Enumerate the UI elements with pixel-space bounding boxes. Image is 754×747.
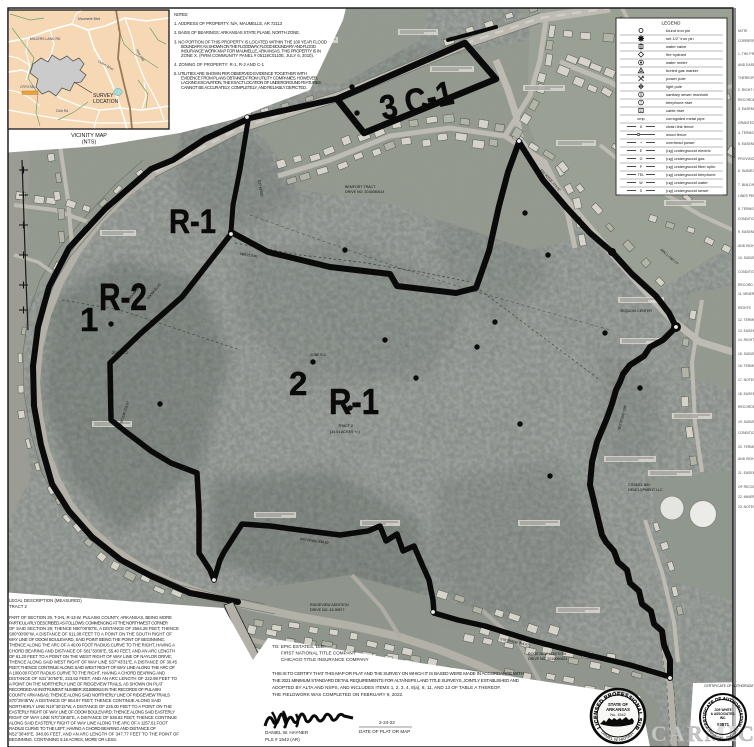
svg-text:21. EASEMENT: 21. EASEMENT xyxy=(738,471,754,475)
svg-text:RECORDED AS INSTRUMENT NUMBER: RECORDED AS INSTRUMENT NUMBER 2016080624… xyxy=(9,687,161,692)
svg-text:fire hydrant: fire hydrant xyxy=(666,52,687,57)
svg-text:(34.04 ACRES +/-): (34.04 ACRES +/-) xyxy=(330,430,360,434)
svg-text:TO: EPIC ESTATES, LLC: TO: EPIC ESTATES, LLC xyxy=(272,644,325,649)
svg-text:buried gas marker: buried gas marker xyxy=(666,68,699,73)
svg-text:A POINT ON THE NORTHERLY LINE: A POINT ON THE NORTHERLY LINE OF RIDGEVI… xyxy=(9,682,163,687)
svg-text:SEQUOIA CENTER: SEQUOIA CENTER xyxy=(620,309,652,313)
svg-text:4. TERMS AND: 4. TERMS AND xyxy=(738,131,754,135)
svg-text:N52°36′48″E, 348.66 FEET, AND: N52°36′48″E, 348.66 FEET, AND AN ARC LEN… xyxy=(9,732,179,737)
svg-text:sanitary sewer manhole: sanitary sewer manhole xyxy=(666,92,709,97)
svg-text:RECORDED: RECORDED xyxy=(738,98,754,102)
svg-text:Club Rd: Club Rd xyxy=(56,109,68,113)
svg-text:LEGAL DESCRIPTION (MEASURED): LEGAL DESCRIPTION (MEASURED) xyxy=(9,598,82,603)
svg-text:+: + xyxy=(640,141,642,145)
svg-text:INC.: INC. xyxy=(720,716,726,720)
svg-text:ROGEVIEW ADDITION: ROGEVIEW ADDITION xyxy=(528,652,566,656)
svg-text:FIRST NATIONAL TITLE COMPANY: FIRST NATIONAL TITLE COMPANY xyxy=(281,651,356,656)
svg-text:chain link fence: chain link fence xyxy=(666,124,694,129)
svg-text:DANIEL W. HAYNER: DANIEL W. HAYNER xyxy=(265,730,309,735)
svg-text:ZONE X. (FIRM COMMUNITY PANEL: ZONE X. (FIRM COMMUNITY PANEL # 05119C01… xyxy=(181,53,314,58)
svg-text:(ug) underground electric: (ug) underground electric xyxy=(666,148,711,153)
svg-text:(ug) underground fiber optic: (ug) underground fiber optic xyxy=(666,164,715,169)
svg-text:MILLERS LAND RD: MILLERS LAND RD xyxy=(30,37,61,41)
svg-text:PART OF SECTION 29, T-3-N, R-1: PART OF SECTION 29, T-3-N, R-13-W, PULAS… xyxy=(9,615,172,620)
svg-text:2-24-22: 2-24-22 xyxy=(379,720,395,725)
svg-text:20. TERMS: 20. TERMS xyxy=(738,445,754,449)
svg-text:COUNTY, ARKANSAS; THENCE ALONG: COUNTY, ARKANSAS; THENCE ALONG SAID NORT… xyxy=(9,693,170,698)
svg-text:AND RIGHT: AND RIGHT xyxy=(738,244,754,248)
svg-text:18. EASEMENT: 18. EASEMENT xyxy=(738,392,754,396)
svg-text:ADOPTED BY ALTA AND NSPS, AND: ADOPTED BY ALTA AND NSPS, AND INCLUDES I… xyxy=(272,685,501,690)
svg-text:WAY LINE OF ODOM BOULEVARD, SA: WAY LINE OF ODOM BOULEVARD, SAID POINT B… xyxy=(9,637,165,642)
svg-text:DRIVE NO. 43-99877: DRIVE NO. 43-99877 xyxy=(310,608,345,612)
svg-text:No. 1542: No. 1542 xyxy=(610,713,625,717)
svg-text:RADIUS CURVE TO THE LEFT, HAVI: RADIUS CURVE TO THE LEFT, HAVING A CHORD… xyxy=(9,726,156,731)
svg-text:THENCE ALONG THE ARC OF A 40.0: THENCE ALONG THE ARC OF A 40.00 FOOT RAD… xyxy=(9,643,175,648)
svg-text:Maumelle Blvd: Maumelle Blvd xyxy=(78,17,100,21)
svg-text:found iron pin: found iron pin xyxy=(666,28,690,33)
svg-text:power pole: power pole xyxy=(666,76,686,81)
svg-text:1. ADDRESS OF PROPERTY: N/A,: 1. ADDRESS OF PROPERTY: N/A, MAUMELLE, A… xyxy=(174,21,283,26)
svg-text:23. NOTES: 23. NOTES xyxy=(738,505,754,509)
svg-text:THE 2021 MINIMUM STANDARD DETA: THE 2021 MINIMUM STANDARD DETAIL REQUIRE… xyxy=(272,678,520,683)
svg-text:THIS IS TO CERTIFY THAT THIS M: THIS IS TO CERTIFY THAT THIS MAP OR PLAT… xyxy=(272,671,524,676)
svg-text:16. TERMS: 16. TERMS xyxy=(738,364,754,368)
svg-text:THEREOF.: THEREOF. xyxy=(738,76,754,80)
svg-text:water valve: water valve xyxy=(666,44,687,49)
svg-text:PARTICULARLY DESCRIBED AS FOLL: PARTICULARLY DESCRIBED AS FOLLOWS: COMME… xyxy=(9,621,168,626)
svg-text:BEMFORT TRACT: BEMFORT TRACT xyxy=(345,185,376,189)
svg-text:2. BASIS OF BEARINGS: ARKANSA: 2. BASIS OF BEARINGS: ARKANSAS STATE PLA… xyxy=(174,30,300,35)
svg-text:CITADEL BAY: CITADEL BAY xyxy=(628,483,651,487)
svg-text:RECORD: RECORD xyxy=(738,283,753,287)
svg-text:EASTERLY RIGHT OF WAY LINE OF: EASTERLY RIGHT OF WAY LINE OF ODOM BOULE… xyxy=(9,709,175,714)
svg-text:telephone riser: telephone riser xyxy=(666,100,693,105)
svg-text:PROVISIONS: PROVISIONS xyxy=(738,157,754,161)
svg-text:ARKANSAS: ARKANSAS xyxy=(606,707,630,712)
svg-text:8. TERMS AND: 8. TERMS AND xyxy=(738,207,754,211)
svg-text:CONDITIONS: CONDITIONS xyxy=(738,217,754,221)
svg-text:NOTE: NOTE xyxy=(738,29,748,33)
svg-text:5. EASEMENT: 5. EASEMENT xyxy=(738,142,754,146)
svg-text:CONDITIONS: CONDITIONS xyxy=(738,431,754,435)
svg-text:DRIVE NO. 2016080624: DRIVE NO. 2016080624 xyxy=(528,657,567,661)
svg-text:CANNOT BE ACCURATELY, COMPLETE: CANNOT BE ACCURATELY, COMPLETELY, AND RE… xyxy=(181,85,307,90)
svg-text:TRACT 2: TRACT 2 xyxy=(9,604,27,609)
svg-text:OF SAID SECTION 29; THENCE N90: OF SAID SECTION 29; THENCE N90°00′00″E, … xyxy=(9,626,179,631)
svg-text:(ug) underground sewer: (ug) underground sewer xyxy=(666,188,709,193)
svg-text:CONDITIONS: CONDITIONS xyxy=(738,270,754,274)
svg-text:13. EASEMENT: 13. EASEMENT xyxy=(738,329,754,333)
svg-text:AND EASEMENTS: AND EASEMENTS xyxy=(738,63,754,67)
svg-text:2: 2 xyxy=(289,365,307,402)
svg-text:#3871: #3871 xyxy=(717,722,730,727)
svg-text:cable riser: cable riser xyxy=(666,108,685,113)
svg-text:wood fence: wood fence xyxy=(666,132,687,137)
svg-text:G: G xyxy=(640,157,643,161)
svg-text:AND RIGHTS: AND RIGHTS xyxy=(738,457,754,461)
svg-text:CHORD BEARING AND DISTANCE OF: CHORD BEARING AND DISTANCE OF S81°33′06″… xyxy=(9,648,175,653)
svg-text:A 1000.00 FOOT RADIUS CURVE TO: A 1000.00 FOOT RADIUS CURVE TO THE RIGHT… xyxy=(9,671,165,676)
svg-text:15. SUBJECT: 15. SUBJECT xyxy=(738,352,754,356)
svg-text:CERTIFICATE OF AUTHORIZATION: CERTIFICATE OF AUTHORIZATION xyxy=(704,684,754,688)
svg-text:light pole: light pole xyxy=(666,84,683,89)
svg-text:ZONE R-1: ZONE R-1 xyxy=(310,353,326,357)
svg-text:12. TERMS: 12. TERMS xyxy=(738,318,754,322)
svg-text:TEL: TEL xyxy=(638,173,645,177)
svg-text:14. RIGHTS: 14. RIGHTS xyxy=(738,338,754,342)
svg-text:22. MINERAL: 22. MINERAL xyxy=(738,495,754,499)
svg-text:CORRESPONDING: CORRESPONDING xyxy=(738,39,754,43)
svg-text:RIGHT OF WAY LINE N70°29′45″E,: RIGHT OF WAY LINE N70°29′45″E, A DISTANC… xyxy=(9,715,177,720)
svg-text:FEET; THENCE CONTINUE ALONG SA: FEET; THENCE CONTINUE ALONG SAID WEST RI… xyxy=(9,665,175,670)
svg-text:S70°29′45″W, A DISTANCE OF 864: S70°29′45″W, A DISTANCE OF 864.97 FEET; … xyxy=(9,698,161,703)
svg-text:3. EASEMENT: 3. EASEMENT xyxy=(738,107,754,111)
svg-text:4. ZONING OF PROPERTY: R-1, R: 4. ZONING OF PROPERTY: R-1, R-2 AND C-1 xyxy=(174,62,265,67)
svg-text:ALONG SAID EASTERLY RIGHT OF W: ALONG SAID EASTERLY RIGHT OF WAY LINE AL… xyxy=(9,720,168,725)
svg-text:7. BUILDING: 7. BUILDING xyxy=(738,183,754,187)
svg-text:GRANTED: GRANTED xyxy=(738,121,754,125)
svg-text:water meter: water meter xyxy=(666,60,688,65)
svg-text:T: T xyxy=(640,101,642,105)
svg-text:R-1: R-1 xyxy=(329,381,379,422)
svg-text:6. SUBJECT TO: 6. SUBJECT TO xyxy=(738,169,754,173)
svg-text:RIGHTS: RIGHTS xyxy=(738,306,752,310)
svg-text:THE FIELDWORK WAS COMPLETED ON: THE FIELDWORK WAS COMPLETED ON FEBRUARY … xyxy=(272,692,403,697)
svg-text:DEVELOPMENT LLC: DEVELOPMENT LLC xyxy=(628,488,663,492)
svg-text:BEGINNING. CONTAINING 5.16 ACR: BEGINNING. CONTAINING 5.16 ACRES, MORE O… xyxy=(9,737,117,742)
svg-text:W: W xyxy=(639,181,643,185)
svg-text:(ug) underground gas: (ug) underground gas xyxy=(666,156,704,161)
svg-text:ZONE R-2: ZONE R-2 xyxy=(112,351,128,355)
svg-text:11. MINERAL: 11. MINERAL xyxy=(738,292,754,296)
svg-text:DATE OF PLAT OR MAP: DATE OF PLAT OR MAP xyxy=(359,729,410,734)
svg-text:cmp: cmp xyxy=(637,116,645,121)
svg-text:R-1: R-1 xyxy=(169,203,216,241)
svg-text:VICINITY MAP: VICINITY MAP xyxy=(71,133,107,139)
svg-text:LINES PER: LINES PER xyxy=(738,194,754,198)
svg-text:OF RECORD: OF RECORD xyxy=(738,485,754,489)
svg-text:overhead power: overhead power xyxy=(666,140,695,145)
svg-text:CHICAGO TITLE INSURANCE COMPAN: CHICAGO TITLE INSURANCE COMPANY xyxy=(281,657,369,662)
svg-text:(ug) underground telephone: (ug) underground telephone xyxy=(666,172,716,177)
svg-text:9. EASEMENT: 9. EASEMENT xyxy=(738,230,754,234)
svg-text:RECORDED: RECORDED xyxy=(738,405,754,409)
svg-text:DISTANCE OF S31°30′50″E, 223.5: DISTANCE OF S31°30′50″E, 223.52 FEET, AN… xyxy=(9,676,178,681)
svg-text:2. RIGHT OF WAY: 2. RIGHT OF WAY xyxy=(738,88,754,92)
svg-text:DRIVE NO. 2016080614: DRIVE NO. 2016080614 xyxy=(345,190,384,194)
svg-text:R-2: R-2 xyxy=(99,277,147,319)
svg-text:NORTHERLY LINE N19°30′15″W, A: NORTHERLY LINE N19°30′15″W, A DISTANCE O… xyxy=(9,704,172,709)
svg-text:S00°00′00″W, A DISTANCE OF 611: S00°00′00″W, A DISTANCE OF 611.08 FEET T… xyxy=(9,632,172,637)
svg-text:1. THE PROPERTY: 1. THE PROPERTY xyxy=(738,52,754,56)
svg-text:(NTS): (NTS) xyxy=(82,140,97,146)
svg-text:OF 61.20 FEET TO A POINT ON TH: OF 61.20 FEET TO A POINT ON THE WEST RIG… xyxy=(9,654,172,659)
svg-text:19. SUBJECT: 19. SUBJECT xyxy=(738,420,754,424)
svg-text:CRYSTAL: CRYSTAL xyxy=(20,85,35,89)
svg-text:17. NOTES: 17. NOTES xyxy=(738,378,754,382)
svg-text:corrugated metal pipe: corrugated metal pipe xyxy=(666,116,705,121)
svg-text:1: 1 xyxy=(80,301,98,338)
svg-text:RIDGEVIEW ADDITION: RIDGEVIEW ADDITION xyxy=(310,603,349,607)
svg-text:TRACT 2: TRACT 2 xyxy=(338,424,353,428)
svg-text:10. SUBJECT: 10. SUBJECT xyxy=(738,256,754,260)
svg-text:LEGEND: LEGEND xyxy=(662,21,682,26)
svg-text:set 1/2" iron pin: set 1/2" iron pin xyxy=(666,36,694,41)
svg-text:NOTES:: NOTES: xyxy=(174,12,188,17)
svg-text:THENCE ALONG SAID WEST RIGHT O: THENCE ALONG SAID WEST RIGHT OF WAY LINE… xyxy=(9,659,178,664)
svg-text:LOCATION: LOCATION xyxy=(93,99,119,105)
svg-text:PLS # 1542 (AR): PLS # 1542 (AR) xyxy=(265,737,300,742)
svg-text:(ug) underground water: (ug) underground water xyxy=(666,180,708,185)
